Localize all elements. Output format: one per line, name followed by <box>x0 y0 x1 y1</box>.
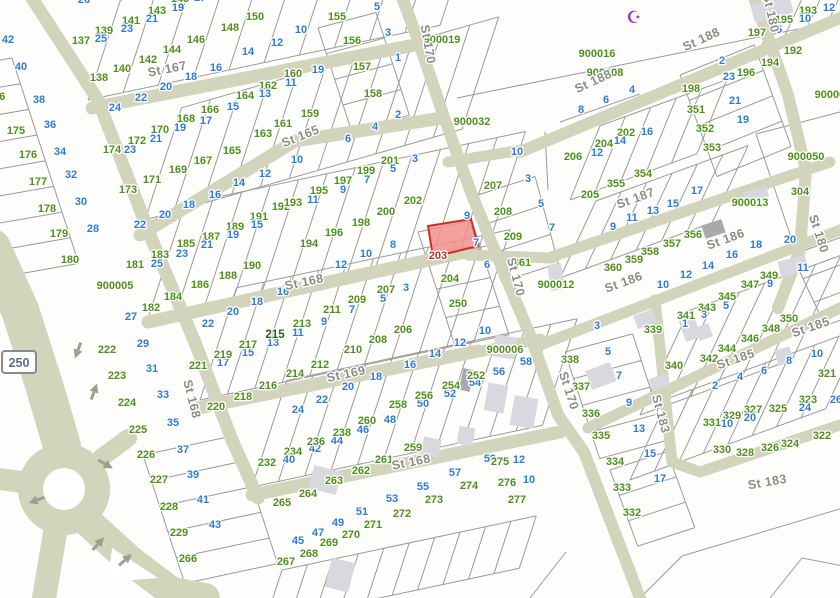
parcel-number-label: 258 <box>389 399 407 411</box>
parcel-number-label: 304 <box>791 186 810 198</box>
house-number-label: 57 <box>449 467 461 479</box>
parcel-number-label: 196 <box>325 227 343 239</box>
parcel-number-label: 218 <box>234 391 252 403</box>
house-number-label: 3 <box>385 27 391 39</box>
house-number-label: 4 <box>629 84 636 96</box>
house-number-label: 11 <box>307 194 319 206</box>
parcel-number-label: 351 <box>687 104 705 116</box>
parcel-number-label: 197 <box>748 27 766 39</box>
mosque-icon: ☪ <box>626 8 641 27</box>
parcel-number-label: 339 <box>644 324 662 336</box>
building <box>457 426 476 447</box>
parcel-number-label: 236 <box>307 436 325 448</box>
parcel-number-label: 146 <box>187 34 205 46</box>
house-number-label: 18 <box>185 71 197 83</box>
house-number-label: 10 <box>291 154 303 166</box>
house-number-label: 9 <box>610 221 616 233</box>
parcel-number-label: 275 <box>491 456 509 468</box>
house-number-label: 17 <box>200 115 212 127</box>
parcel-number-label: 269 <box>320 537 338 549</box>
house-number-label: 21 <box>146 13 158 25</box>
parcel-number-label-selected: 215 <box>265 329 285 341</box>
house-number-label: 17 <box>654 473 666 485</box>
house-number-label: 3 <box>701 309 707 321</box>
house-number-label: 7 <box>364 174 370 186</box>
parcel-number-label: 144 <box>163 44 182 56</box>
house-number-label: 6 <box>345 133 351 145</box>
house-number-label: 14 <box>429 348 442 360</box>
parcel-number-label: 277 <box>508 494 526 506</box>
house-number-label: 3 <box>594 320 600 332</box>
house-number-label: 5 <box>723 300 729 312</box>
house-number-label: 29 <box>137 338 149 350</box>
house-number-label: 12 <box>513 454 525 466</box>
house-number-label: 7 <box>473 237 479 249</box>
parcel-number-label: 232 <box>258 457 276 469</box>
parcel-number-label: 220 <box>207 401 225 413</box>
arrow-head <box>71 348 83 360</box>
parcel-number-label: 196 <box>737 67 755 79</box>
public-parcel-label: 900005 <box>815 89 840 101</box>
house-number-label: 6 <box>484 259 490 271</box>
parcel-number-label: 267 <box>277 556 295 568</box>
parcel-number-label: 173 <box>119 184 137 196</box>
parcel-number-label: 260 <box>358 415 376 427</box>
parcel-number-label: 330 <box>713 444 731 456</box>
building <box>695 323 713 341</box>
house-number-label: 11 <box>797 262 809 274</box>
house-number-label: 20 <box>227 306 239 318</box>
parcel-number-label: 150 <box>246 11 264 23</box>
parcel-number-label: 208 <box>369 334 387 346</box>
parcel-number-label: 332 <box>623 507 641 519</box>
house-number-label: 9 <box>321 316 327 328</box>
house-number-label: 23 <box>723 71 735 83</box>
house-number-label: 19 <box>737 114 749 126</box>
house-number-label: 20 <box>160 81 172 93</box>
house-number-label: 21 <box>150 133 162 145</box>
house-number-label: 10 <box>295 24 307 36</box>
house-number-label: 42 <box>2 34 14 46</box>
parcel-number-label: 216 <box>259 380 277 392</box>
parcel-number-label: 262 <box>352 465 370 477</box>
house-number-label: 43 <box>209 519 221 531</box>
house-number-label: 19 <box>172 2 184 14</box>
parcel-number-label: 211 <box>323 304 341 316</box>
house-number-label: 12 <box>271 37 283 49</box>
house-number-label: 30 <box>75 196 87 208</box>
parcel-number-label: 356 <box>684 229 702 241</box>
parcel-number-label: 268 <box>300 548 318 560</box>
parcel-lines-layer <box>0 0 840 598</box>
house-number-label: 5 <box>390 163 396 175</box>
arrow-stem <box>91 392 94 400</box>
parcel-number-label: 229 <box>170 527 188 539</box>
parcel-number-label: 140 <box>113 63 131 75</box>
house-number-label: 13 <box>647 205 659 217</box>
house-number-label: 15 <box>251 219 263 231</box>
roads-layer <box>0 0 840 598</box>
house-number-label: 5 <box>374 1 380 13</box>
house-number-label: 28 <box>87 223 99 235</box>
house-number-label: 45 <box>292 535 304 547</box>
house-number-label: 9 <box>340 184 346 196</box>
parcel-number-label: 163 <box>254 128 272 140</box>
parcel-number-label: 209 <box>348 294 366 306</box>
house-number-label: 10 <box>360 248 372 260</box>
road <box>44 533 55 598</box>
parcel-number-label: 155 <box>328 11 346 23</box>
parcel-number-label: 188 <box>219 270 237 282</box>
roundabout-island <box>43 468 85 510</box>
house-number-label: 2 <box>719 55 725 67</box>
parcel-block-lines <box>0 58 79 276</box>
house-number-label: 10 <box>523 474 535 486</box>
parcel-number-label: 209 <box>504 231 522 243</box>
parcel-number-label: 180 <box>61 254 79 266</box>
house-number-label: 51 <box>356 506 368 518</box>
parcel-number-label: 175 <box>7 125 25 137</box>
parcel-number-label: 271 <box>364 519 382 531</box>
parcel-number-label: 263 <box>325 475 343 487</box>
parcel-number-label: 324 <box>781 438 800 450</box>
road <box>400 0 640 598</box>
parcel-number-label: 212 <box>311 359 329 371</box>
parcel-number-label: 214 <box>286 368 305 380</box>
house-number-label: 12 <box>823 2 835 14</box>
house-number-label: 20 <box>744 412 756 424</box>
building <box>484 382 509 413</box>
parcel-number-label: 136 <box>0 91 5 103</box>
arrow-stem <box>78 342 81 350</box>
parcel-number-label: 204 <box>441 273 460 285</box>
house-number-label: 24 <box>109 102 122 114</box>
parcel-number-label: 276 <box>498 477 516 489</box>
house-number-label: 23 <box>121 23 133 35</box>
parcel-number-label: 340 <box>665 360 683 372</box>
house-number-label: 10 <box>721 418 733 430</box>
house-number-label: 12 <box>454 337 466 349</box>
parcel-number-label: 322 <box>813 430 831 442</box>
parcel-number-label: 355 <box>607 178 625 190</box>
house-number-label: 18 <box>251 296 263 308</box>
route-shield-label: 250 <box>9 356 30 370</box>
parcel-number-label: 348 <box>762 323 780 335</box>
house-number-label: 18 <box>370 371 382 383</box>
house-number-label: 25 <box>151 258 163 270</box>
house-number-label: 15 <box>644 448 656 460</box>
parcel-number-label: 259 <box>404 442 422 454</box>
parcel-number-label: 171 <box>143 174 161 186</box>
house-number-label: 11 <box>285 77 297 89</box>
house-number-label: 4 <box>737 371 744 383</box>
house-number-label: 48 <box>384 414 396 426</box>
house-number-label: 6 <box>761 365 767 377</box>
public-parcel-label: 900006 <box>487 344 524 356</box>
parcel-number-label: 148 <box>221 22 239 34</box>
house-number-label: 12 <box>680 269 692 281</box>
house-number-label: 12 <box>591 147 603 159</box>
house-number-label: 22 <box>134 219 146 231</box>
parcel-number-label: 266 <box>179 553 197 565</box>
parcel-number-label: 226 <box>137 449 155 461</box>
parcel-number-label: 179 <box>50 228 68 240</box>
parcel-number-label: 192 <box>784 45 802 57</box>
street-label: St 168 <box>180 378 203 419</box>
house-number-label: 8 <box>786 355 792 367</box>
parcel-number-label: 169 <box>169 164 187 176</box>
house-number-label: 1 <box>682 318 688 330</box>
parcel-number-label: 198 <box>682 83 700 95</box>
house-number-label: 32 <box>65 169 77 181</box>
parcel-number-label: 221 <box>189 360 207 372</box>
house-number-label: 37 <box>177 444 189 456</box>
parcel-number-label: 338 <box>561 354 579 366</box>
building <box>325 558 356 593</box>
map-canvas[interactable]: 203 261451914321141231392513717150148146… <box>0 0 840 598</box>
parcel-number-label: 186 <box>191 279 209 291</box>
parcel-number-label: 353 <box>703 142 721 154</box>
house-number-label: 41 <box>197 494 209 506</box>
house-number-label: 10 <box>511 146 523 158</box>
parcel-number-label: 254 <box>442 380 461 392</box>
parcel-number-label: 238 <box>333 427 351 439</box>
road <box>0 248 62 446</box>
parcel-line <box>530 552 566 598</box>
house-number-label: 16 <box>641 126 653 138</box>
house-number-label: 39 <box>187 469 199 481</box>
parcel-number-label: 213 <box>293 318 311 330</box>
road-direction-arrow <box>87 382 101 401</box>
house-number-label: 13 <box>259 88 271 100</box>
public-parcel-label: 900012 <box>538 279 575 291</box>
parcel-number-label: 256 <box>415 390 433 402</box>
house-number-label: 7 <box>549 222 555 234</box>
public-parcel-label: 900005 <box>97 280 134 292</box>
building <box>510 395 539 429</box>
arrow-head <box>90 382 102 394</box>
parcel-number-label: 210 <box>344 344 362 356</box>
house-number-label: 21 <box>201 239 213 251</box>
house-number-label: 14 <box>242 46 255 58</box>
house-number-label: 4 <box>372 121 379 133</box>
house-number-label: 10 <box>657 279 669 291</box>
parcel-number-label: 181 <box>126 259 144 271</box>
parcel-number-label: 227 <box>150 474 168 486</box>
road <box>101 438 128 458</box>
house-number-label: 34 <box>54 146 67 158</box>
parcel-number-label: 161 <box>274 118 292 130</box>
house-number-label: 20 <box>159 209 171 221</box>
parcel-number-label: 156 <box>343 35 361 47</box>
parcel-number-label: 357 <box>663 238 681 250</box>
house-number-label: 15 <box>667 198 679 210</box>
house-number-label: 26 <box>78 0 90 6</box>
house-number-label: 6 <box>603 94 609 106</box>
parcel-number-label: 137 <box>72 35 90 47</box>
parcel-number-label: 350 <box>780 313 798 325</box>
house-number-label: 58 <box>520 356 532 368</box>
parcel-number-label: 335 <box>592 430 610 442</box>
house-number-label: 10 <box>811 348 823 360</box>
parcel-number-label: 274 <box>460 480 479 492</box>
house-number-label: 14 <box>614 135 627 147</box>
house-number-label: 9 <box>464 210 470 222</box>
house-number-label: 2 <box>395 109 401 121</box>
parcel-number-label: 223 <box>108 370 126 382</box>
parcel-line <box>640 508 840 598</box>
house-number-label: 3 <box>403 282 409 294</box>
house-number-label: 27 <box>125 311 137 323</box>
house-number-label: 5 <box>605 346 611 358</box>
parcel-number-label: 270 <box>342 529 360 541</box>
parcel-number-label: 358 <box>641 246 659 258</box>
parcel-number-label: 198 <box>352 217 370 229</box>
house-number-label: 19 <box>227 229 239 241</box>
parcel-number-label: 182 <box>142 302 160 314</box>
house-number-label: 19 <box>312 64 324 76</box>
house-number-label: 40 <box>283 454 295 466</box>
map-viewport[interactable]: 203 261451914321141231392513717150148146… <box>0 0 840 598</box>
parcel-number-label: 347 <box>741 279 759 291</box>
house-number-label: 38 <box>33 94 45 106</box>
parcel-number-label: 273 <box>425 494 443 506</box>
parcel-number-label: 336 <box>582 408 600 420</box>
street-label: St 168 <box>391 451 432 472</box>
house-number-label: 3 <box>525 173 531 185</box>
house-number-label: 16 <box>209 189 221 201</box>
selected-parcel-label: 203 <box>429 250 447 262</box>
parcel-number-label: 174 <box>103 144 122 156</box>
house-number-label: 16 <box>404 359 416 371</box>
parcel-number-label: 331 <box>703 417 721 429</box>
street-label: St 188 <box>681 25 722 54</box>
house-number-label: 7 <box>616 370 622 382</box>
house-number-label: 26 <box>830 394 840 406</box>
parcel-number-label: 359 <box>625 254 643 266</box>
parcel-number-label: 176 <box>19 149 37 161</box>
parcel-number-label: 157 <box>353 61 371 73</box>
parcel-number-label: 272 <box>393 508 411 520</box>
parcel-number-label: 224 <box>118 397 137 409</box>
house-number-label: 20 <box>784 234 796 246</box>
street-label: St 183 <box>747 472 788 493</box>
parcel-number-label: 206 <box>564 151 582 163</box>
parcel-number-label: 265 <box>273 497 291 509</box>
public-parcel-label: 900016 <box>579 48 616 60</box>
house-number-label: 36 <box>44 119 56 131</box>
parcel-number-label: 360 <box>604 262 622 274</box>
house-number-label: 17 <box>691 185 703 197</box>
house-number-label: 24 <box>799 402 812 414</box>
parcel-number-label: 250 <box>449 298 467 310</box>
parcel-number-label: 138 <box>90 72 108 84</box>
house-number-label: 18 <box>750 239 762 251</box>
house-number-label: 17 <box>194 0 206 4</box>
parcel-number-label: 178 <box>38 203 56 215</box>
house-number-label: 20 <box>342 381 354 393</box>
parcel-number-label: 222 <box>98 344 116 356</box>
parcel-number-label: 326 <box>761 442 779 454</box>
house-number-label: 35 <box>167 417 179 429</box>
parcel-line <box>770 558 840 598</box>
house-number-label: 12 <box>259 168 271 180</box>
parcel-number-label: 190 <box>243 260 261 272</box>
house-number-label: 55 <box>417 481 429 493</box>
parcel-number-label: 159 <box>301 108 319 120</box>
parcel-number-label: 184 <box>164 291 183 303</box>
parcel-number-label: 207 <box>377 284 395 296</box>
house-number-label: 5 <box>538 198 544 210</box>
parcel-number-label: 167 <box>194 155 212 167</box>
road-direction-arrow <box>71 341 85 360</box>
house-number-label: 23 <box>124 144 136 156</box>
house-number-label: 25 <box>95 33 107 45</box>
parcel-number-label: 207 <box>484 180 502 192</box>
house-number-label: 23 <box>176 248 188 260</box>
house-number-label: 10 <box>799 13 811 25</box>
parcel-number-label: 334 <box>606 456 625 468</box>
public-parcel-label: 900032 <box>454 116 491 128</box>
house-number-label: 21 <box>729 95 741 107</box>
parcel-number-label: 177 <box>29 176 47 188</box>
parcel-number-label: 219 <box>214 349 232 361</box>
house-number-label: 14 <box>233 177 246 189</box>
house-number-label: 31 <box>146 363 158 375</box>
public-parcel-label: 900050 <box>788 151 825 163</box>
house-number-label: 14 <box>702 260 715 272</box>
parcel-number-label: 206 <box>394 324 412 336</box>
parcel-number-label: 225 <box>129 424 147 436</box>
house-number-label: 3 <box>412 153 418 165</box>
parcel-number-label: 165 <box>223 145 241 157</box>
parcel-number-label: 264 <box>299 488 318 500</box>
house-number-label: 16 <box>726 249 738 261</box>
parcel-number-label: 228 <box>160 501 178 513</box>
parcel-number-label: 346 <box>741 333 759 345</box>
parcel-number-label: 354 <box>634 168 653 180</box>
house-number-label: 9 <box>767 278 773 290</box>
house-number-label: 8 <box>578 104 584 116</box>
house-number-label: 22 <box>316 394 328 406</box>
house-number-label: 49 <box>332 517 344 529</box>
parcel-number-label: 194 <box>300 238 319 250</box>
house-number-label: 2 <box>712 380 718 392</box>
parcel-number-label: 328 <box>736 447 754 459</box>
house-number-label: 18 <box>183 199 195 211</box>
house-number-label: 16 <box>210 62 222 74</box>
parcel-number-label: 333 <box>613 482 631 494</box>
parcel-number-label: 158 <box>364 88 382 100</box>
public-parcel-label: 900013 <box>732 197 769 209</box>
house-number-label: 12 <box>335 259 347 271</box>
parcel-number-label: 202 <box>404 195 422 207</box>
house-number-label: 24 <box>292 404 305 416</box>
parcel-number-label: 208 <box>494 206 512 218</box>
house-number-label: 8 <box>390 239 396 251</box>
parcel-number-label: 325 <box>769 403 787 415</box>
parcel-number-label: 321 <box>818 368 836 380</box>
parcel-number-label: 205 <box>581 189 599 201</box>
house-number-label: 40 <box>15 61 27 73</box>
parcel-number-label: 200 <box>377 206 395 218</box>
house-number-label: 33 <box>157 389 169 401</box>
house-number-label: 9 <box>626 397 632 409</box>
house-number-label: 22 <box>202 318 214 330</box>
house-number-label: 13 <box>633 423 645 435</box>
parcel-number-label: 194 <box>761 57 780 69</box>
house-number-label: 19 <box>174 122 186 134</box>
